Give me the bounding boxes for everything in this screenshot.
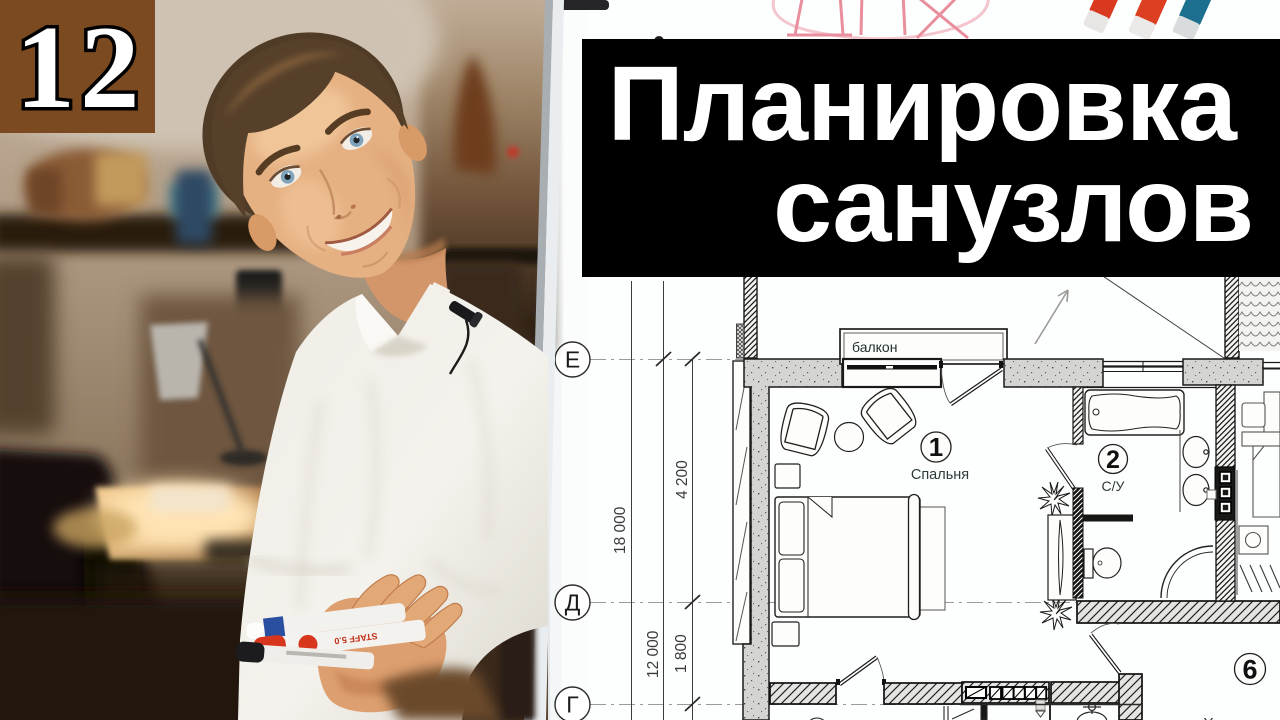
- svg-text:2: 2: [1106, 446, 1120, 474]
- svg-text:Холл: Холл: [1203, 716, 1241, 720]
- svg-text:С/У: С/У: [1102, 478, 1125, 494]
- svg-text:6: 6: [1242, 655, 1257, 685]
- svg-text:Г: Г: [566, 692, 579, 718]
- svg-text:1 800: 1 800: [673, 634, 690, 673]
- svg-text:18 000: 18 000: [612, 506, 629, 554]
- svg-text:Спальня: Спальня: [911, 467, 969, 483]
- svg-text:Д: Д: [565, 590, 581, 616]
- svg-text:1: 1: [929, 432, 943, 462]
- svg-text:балкон: балкон: [852, 339, 897, 355]
- svg-text:12: 12: [16, 1, 145, 133]
- svg-text:12 000: 12 000: [645, 630, 662, 678]
- svg-text:4 200: 4 200: [674, 460, 691, 499]
- svg-text:Е: Е: [565, 347, 580, 373]
